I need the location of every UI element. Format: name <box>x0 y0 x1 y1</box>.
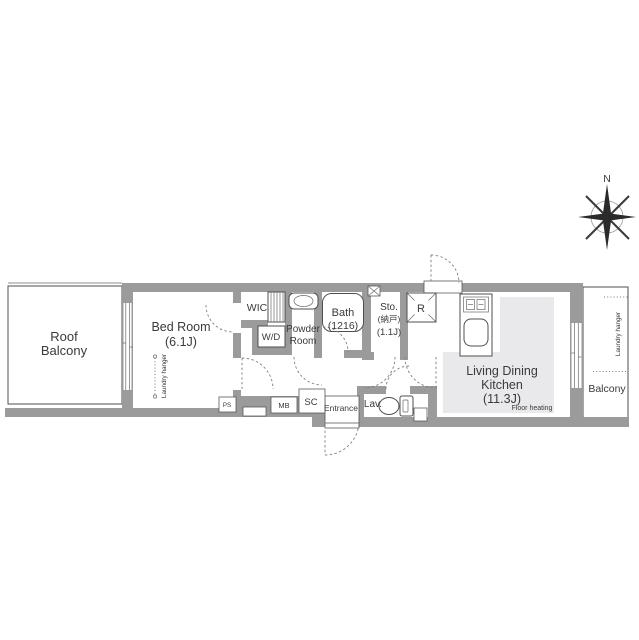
bedroom-laundry-hanger-label: Laundry hanger <box>161 354 168 398</box>
compass-north-spike <box>603 184 611 217</box>
bath-label-1: Bath <box>332 307 355 319</box>
compass-west-spike <box>578 214 607 221</box>
sto-label-3: (1.1J) <box>377 327 401 338</box>
mb-label: MB <box>278 401 289 410</box>
wall-wd-bottom <box>252 347 292 355</box>
balcony-label: Balcony <box>588 383 626 395</box>
kitchen-sink-icon <box>464 319 488 346</box>
bedroom-laundry-hook-top <box>153 355 156 358</box>
ps-label: PS <box>223 402 231 409</box>
bedroom-window <box>124 303 132 390</box>
ldk-window <box>572 323 582 388</box>
sto-label-2: (納戸) <box>378 314 401 324</box>
lav-door-arc <box>386 366 409 389</box>
sc-label: SC <box>304 397 317 408</box>
bedroom-laundry-hook-bottom <box>153 395 156 398</box>
service-door-arc <box>431 255 459 283</box>
wall-lav-ldk-divider <box>428 386 437 427</box>
wall-bottom-right <box>318 417 629 427</box>
wd-label: W/D <box>262 332 281 343</box>
floor-plan-page: N Roof Balcony Bed Room (6.1J) Laundry h… <box>0 0 639 640</box>
compass-east-spike <box>607 214 636 221</box>
refrigerator-label: R <box>417 303 425 315</box>
floor-plan-drawing: N Roof Balcony Bed Room (6.1J) Laundry h… <box>0 0 639 640</box>
roof-balcony-label-1: Roof <box>50 329 78 344</box>
entrance-label: Entrance <box>324 403 358 413</box>
sto-door-arc <box>364 357 395 388</box>
bedroom-label-1: Bed Room <box>151 320 210 334</box>
compass-rose: N <box>578 173 636 250</box>
powder-label-1: Powder <box>286 324 321 335</box>
powder-door-arc <box>294 357 322 385</box>
wall-bedroom-right-2 <box>233 333 241 358</box>
bedroom-label-2: (6.1J) <box>165 335 197 349</box>
floor-heating-label: Floor heating <box>512 405 553 412</box>
bedroom-door-arc <box>242 358 273 389</box>
ldk-label-2: Kitchen <box>481 378 523 392</box>
lav-label: Lav. <box>364 399 382 410</box>
ldk-label-1: Living Dining <box>466 364 538 378</box>
ldk-label-3: (11.3J) <box>483 392 521 406</box>
wall-vent <box>243 407 266 416</box>
sto-label-1: Sto. <box>380 302 398 313</box>
bath-door-gap <box>322 349 344 359</box>
sto-door-gap <box>374 351 400 361</box>
roof-balcony-label-2: Balcony <box>41 343 88 358</box>
powder-label-2: Room <box>290 336 317 347</box>
toilet-tank <box>400 396 413 416</box>
ldk-door-arc <box>405 357 436 388</box>
compass-south-spike <box>603 217 611 250</box>
kitchen-service-door <box>424 281 462 293</box>
bath-label-2: (1216) <box>328 320 358 332</box>
wall-top <box>122 283 583 292</box>
wall-corner-box <box>414 408 427 421</box>
wic-label: WIC <box>247 302 268 314</box>
balcony-laundry-hanger-label: Laundry hanger <box>615 312 622 356</box>
compass-north-label: N <box>603 173 611 185</box>
wic-shelf <box>268 292 285 322</box>
wall-bedroom-right-1 <box>233 292 241 303</box>
